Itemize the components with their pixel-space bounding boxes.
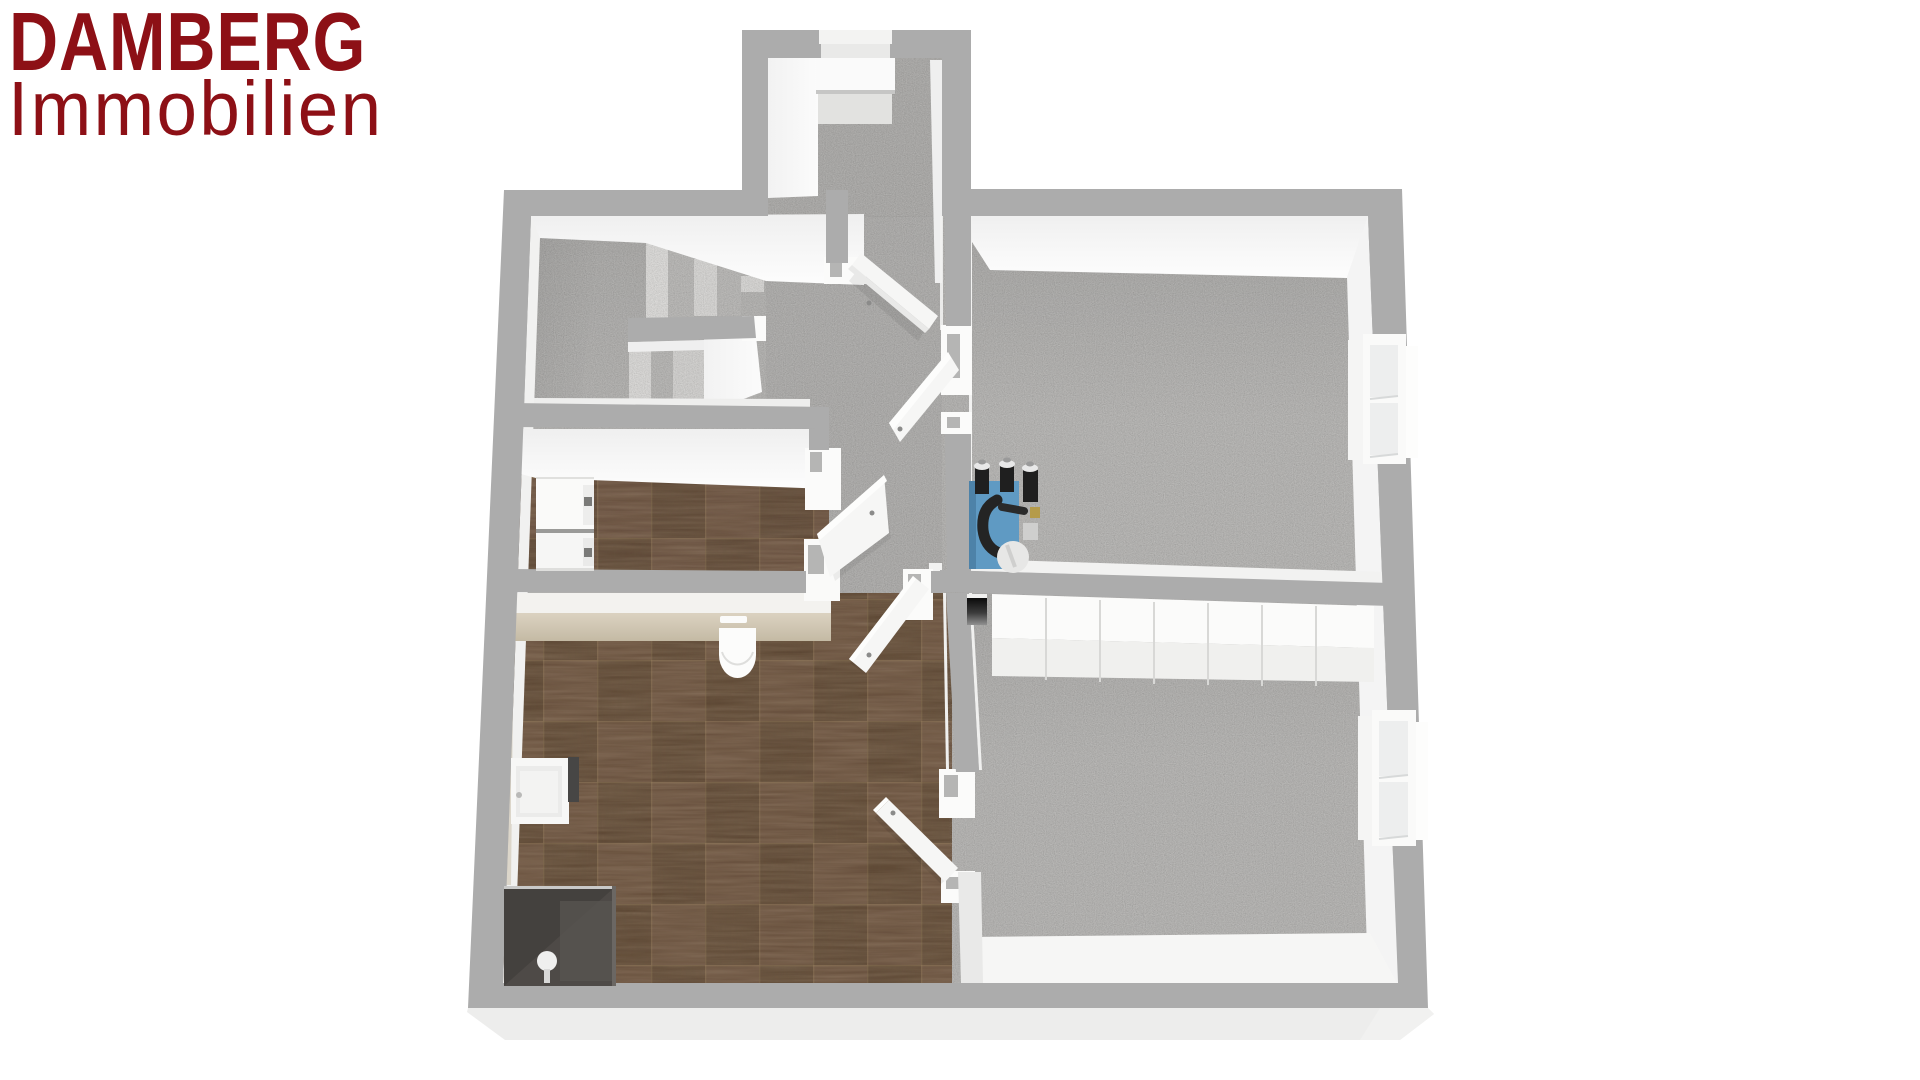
- svg-text:Immobilien: Immobilien: [8, 65, 383, 151]
